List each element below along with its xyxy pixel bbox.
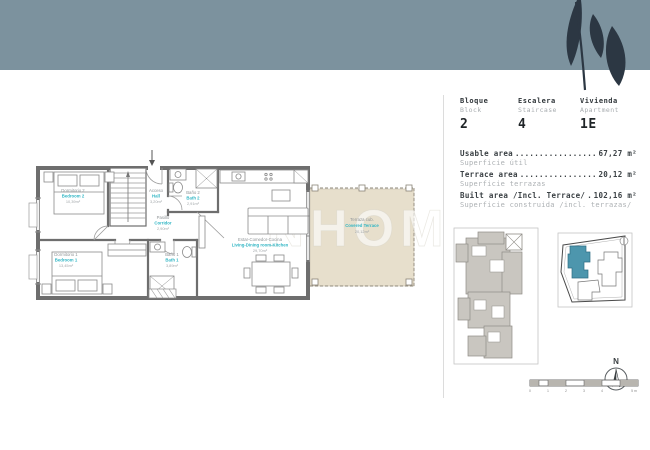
terrace-area-value: 20,12 m² [598, 170, 637, 179]
bedroom2-area: 10,39m² [66, 199, 81, 204]
scale-tick-3: 3 [583, 389, 585, 393]
bedroom2-label-en: Bedroom 2 [62, 194, 85, 199]
leaf-icon [567, 0, 626, 90]
dot-leader: ................................ [520, 170, 597, 179]
scale-tick-2: 2 [565, 389, 567, 393]
corridor-area: 2,90m² [157, 226, 170, 231]
built-area-row: Built area /Incl. Terrace/ .............… [460, 191, 637, 200]
scale-tick-5: 5 m [631, 389, 637, 393]
bath1-area: 3,89m² [166, 263, 179, 268]
usable-area-row: Usable area ............................… [460, 149, 637, 158]
living-area: 29,70m² [253, 248, 268, 253]
bath2-area: 2,91m² [187, 201, 200, 206]
entry-arrow-icon [149, 150, 155, 166]
usable-area-label-es: Superficie útil [460, 159, 637, 167]
living-label-es: Estar-Comedor-Cocina [238, 237, 283, 242]
hall-area: 3,20m² [150, 199, 163, 204]
terrace-area-label-es: Superficie terrazas [460, 180, 637, 188]
bath2-label-en: Bath 2 [186, 196, 200, 201]
terrace-area-row: Terrace area ...........................… [460, 170, 637, 179]
terrace-area-label: Terrace area [460, 170, 518, 179]
staircase-value: 4 [518, 117, 580, 132]
stairs [110, 168, 146, 226]
terrace-label-es: Terraza cub. [350, 217, 374, 222]
elevator-shaft-icon [506, 234, 522, 250]
block-label-es: Bloque [460, 97, 518, 105]
scale-tick-1: 1 [547, 389, 549, 393]
staircase-column: Escalera Staircase 4 [518, 97, 580, 132]
block-value: 2 [460, 117, 518, 132]
built-area-label: Built area /Incl. Terrace/ [460, 191, 585, 200]
bedroom1-area: 13,45m² [59, 263, 74, 268]
bath1-label-en: Bath 1 [165, 258, 179, 263]
bedroom1-label-en: Bedroom 1 [55, 258, 78, 263]
scale-tick-0: 0 [529, 389, 531, 393]
area-summary: Usable area ............................… [443, 149, 641, 209]
bedroom2-label-es: Dormitorio 2 [61, 188, 85, 193]
apartment-label-en: Apartment [580, 106, 641, 114]
apartment-column: Vivienda Apartment 1E [580, 97, 641, 132]
building-key-plan [454, 228, 538, 364]
dot-leader: ................................ [515, 149, 596, 158]
corridor-label-en: Corridor [154, 221, 172, 226]
floor-plan: NHOM [29, 150, 449, 298]
staircase-label-es: Escalera [518, 97, 580, 105]
hall-label-en: Hall [152, 194, 160, 199]
living-label-en: Living-Dining room-Kitchen [232, 243, 289, 248]
bedroom1-label-es: Dormitorio 1 [54, 252, 78, 257]
dining-table [244, 255, 298, 293]
site-key-plan [558, 233, 632, 307]
block-column: Bloque Block 2 [460, 97, 518, 132]
block-label-en: Block [460, 106, 518, 114]
terrace-label-en: Covered Terrace [345, 223, 379, 228]
terrace-area: 20,12m² [355, 229, 370, 234]
unit-info: Bloque Block 2 Escalera Staircase 4 Vivi… [443, 97, 641, 132]
apartment-label-es: Vivienda [580, 97, 641, 105]
mini-compass-icon [620, 237, 628, 245]
sofa [248, 190, 308, 234]
dot-leader: ................................ [587, 191, 591, 200]
tv-bench [199, 216, 205, 248]
info-panel: Bloque Block 2 Escalera Staircase 4 Vivi… [443, 97, 641, 212]
built-area-label-es: Superficie construida /incl. terrazas/ [460, 201, 637, 209]
bottom-hatch [149, 289, 176, 298]
apartment-value: 1E [580, 117, 641, 132]
kitchen-counter [220, 170, 308, 183]
brochure-page: NHOM [0, 0, 650, 450]
usable-area-label: Usable area [460, 149, 513, 158]
scale-tick-4: 4 [601, 389, 603, 393]
staircase-label-en: Staircase [518, 106, 580, 114]
bath1-label-es: Baño 1 [165, 252, 179, 257]
hall-label-es: Acceso [149, 188, 164, 193]
usable-area-value: 67,27 m² [598, 149, 637, 158]
built-area-value: 102,16 m² [594, 191, 637, 200]
bath1-fixtures [150, 242, 196, 296]
bath2-label-es: Baño 2 [186, 190, 200, 195]
window-sills [29, 203, 37, 279]
north-label: N [613, 357, 619, 366]
corridor-label-es: Pasillo [157, 215, 170, 220]
